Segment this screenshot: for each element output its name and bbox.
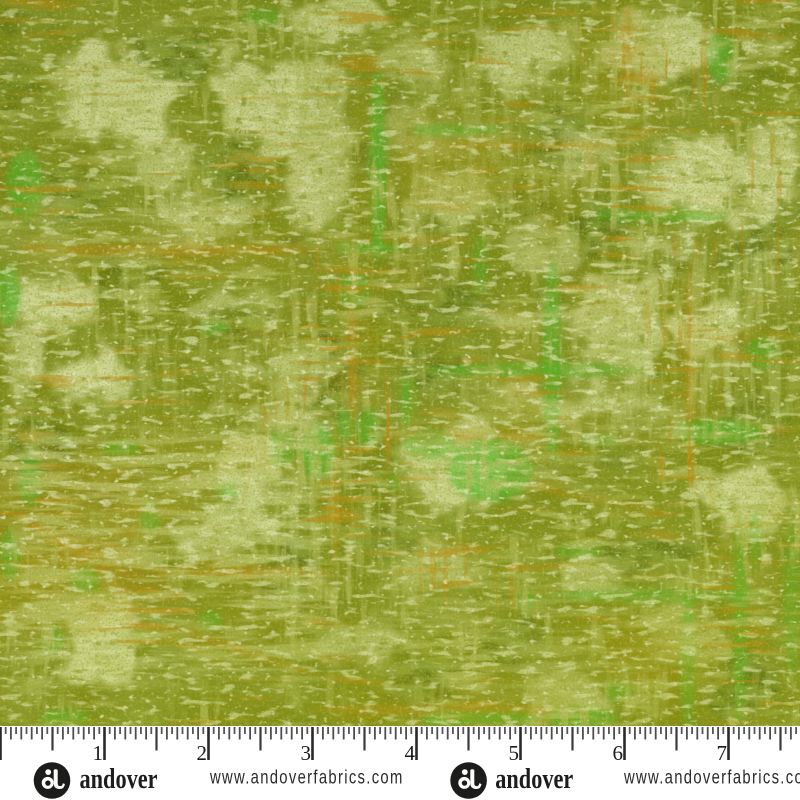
svg-text:andover: andover [495,764,573,795]
svg-text:andover: andover [80,764,158,795]
svg-text:www.andoverfabrics.com: www.andoverfabrics.com [623,767,800,788]
svg-text:www.andoverfabrics.com: www.andoverfabrics.com [209,767,404,788]
